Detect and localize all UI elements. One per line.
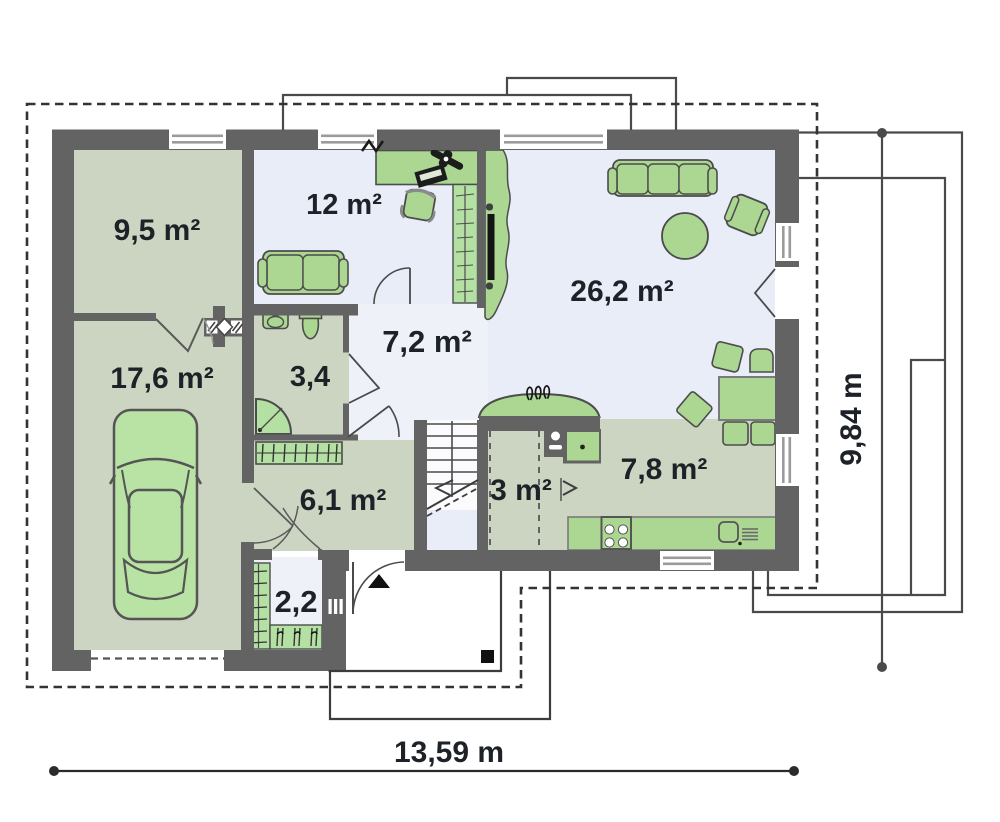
svg-text:2,2: 2,2 (274, 584, 317, 619)
svg-text:7,8 m²: 7,8 m² (621, 453, 708, 486)
svg-text:9,84 m: 9,84 m (835, 372, 868, 465)
svg-text:26,2 m²: 26,2 m² (570, 275, 673, 308)
svg-text:12 m²: 12 m² (306, 189, 382, 221)
svg-text:6,1 m²: 6,1 m² (300, 484, 387, 517)
svg-text:13,59 m: 13,59 m (394, 736, 504, 769)
svg-text:3 m²: 3 m² (490, 474, 552, 507)
svg-text:17,6 m²: 17,6 m² (110, 362, 213, 395)
svg-text:3,4: 3,4 (290, 361, 330, 393)
svg-text:7,2 m²: 7,2 m² (382, 324, 472, 359)
svg-text:9,5 m²: 9,5 m² (114, 214, 201, 247)
